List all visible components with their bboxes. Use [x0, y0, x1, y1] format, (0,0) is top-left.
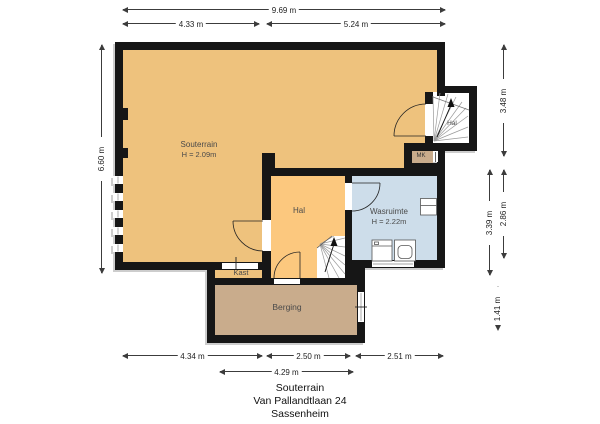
wall-left: [115, 42, 123, 270]
kast-label: Kast: [233, 268, 248, 278]
room-hal: [271, 176, 345, 278]
dimension-label: 5.24 m: [341, 20, 371, 29]
dimension-label: 3.39 m: [485, 201, 495, 245]
dimension-left-total: 6.60 m: [101, 45, 102, 273]
wall-pillar: [262, 153, 275, 168]
wall-bump: [123, 148, 128, 158]
wall-berging-left: [207, 278, 215, 343]
dimension-label: 4.29 m: [271, 368, 301, 377]
wall-block-top: [262, 168, 445, 176]
dimension-bottom-4: 4.29 m: [220, 371, 353, 372]
dimension-label: 4.34 m: [177, 352, 207, 361]
room-name: Hal: [293, 206, 305, 216]
room-stair-hall: [433, 92, 469, 143]
dimension-right-2: 3.39 m: [489, 170, 490, 275]
room-name: Souterrain: [181, 140, 218, 150]
window-left: [113, 193, 123, 201]
window-left: [113, 176, 123, 184]
dimension-label: 9.69 m: [269, 6, 299, 15]
door-opening-wasruimte: [345, 183, 352, 210]
door-opening-berging-exterior: [358, 292, 364, 322]
dimension-bottom-1: 4.34 m: [123, 355, 262, 356]
wasruimte-label: Wasruimte H = 2.22m: [370, 207, 408, 227]
room-name: Berging: [272, 302, 301, 312]
room-name: Hal: [447, 119, 457, 129]
dimension-label: 2.50 m: [293, 352, 323, 361]
floorplan-page: { "title_block": { "floor": "Souterrain"…: [0, 0, 600, 424]
dimension-top-total: 9.69 m: [123, 9, 445, 10]
dimension-label: 2.51 m: [384, 352, 414, 361]
dimension-label: 3.48 m: [499, 79, 509, 123]
wall-stair-bottom: [404, 143, 477, 151]
dimension-label: 1.41 m: [493, 287, 503, 331]
room-height: H = 2.22m: [370, 217, 408, 227]
wall-berging-bottom: [207, 335, 365, 343]
dimension-label: 2.86 m: [499, 192, 509, 236]
wall-bump: [123, 108, 128, 120]
dimension-label: 6.60 m: [97, 137, 107, 181]
room-name: MK: [417, 151, 426, 161]
dimension-bottom-2: 2.50 m: [267, 355, 350, 356]
window-wasruimte: [372, 261, 414, 267]
room-name: Wasruimte: [370, 207, 408, 217]
door-opening-meterkast: [433, 151, 438, 162]
city: Sassenheim: [0, 408, 600, 421]
window-left: [113, 227, 123, 235]
title-block: Souterrain Van Pallandtlaan 24 Sassenhei…: [0, 382, 600, 421]
dimension-label: 4.33 m: [176, 20, 206, 29]
window-left: [113, 244, 123, 252]
room-souterrain: [123, 168, 262, 262]
wall-top: [115, 42, 445, 50]
hal-label: Hal: [293, 206, 305, 216]
room-name: Kast: [233, 268, 248, 278]
stair-hall-label: Hal: [447, 119, 457, 129]
souterrain-label: Souterrain H = 2.09m: [181, 140, 218, 160]
dimension-right-3: 2.86 m: [503, 170, 504, 258]
address: Van Pallandtlaan 24: [0, 395, 600, 408]
window-left: [113, 210, 123, 218]
dimension-top-left: 4.33 m: [123, 23, 259, 24]
door-opening-hal: [262, 220, 271, 251]
door-opening-berging: [274, 279, 300, 284]
door-opening-stairhall: [425, 104, 433, 136]
dimension-bottom-3: 2.51 m: [356, 355, 443, 356]
room-height: H = 2.09m: [181, 150, 218, 160]
room-souterrain: [123, 50, 437, 92]
meterkast-label: MK: [417, 151, 426, 161]
dimension-top-right: 5.24 m: [267, 23, 445, 24]
floor-title: Souterrain: [0, 382, 600, 395]
berging-label: Berging: [272, 302, 301, 312]
dimension-right-1: 3.48 m: [503, 45, 504, 156]
dimension-right-4: 1.41 m: [497, 287, 498, 330]
wall-stair-right: [469, 86, 477, 151]
